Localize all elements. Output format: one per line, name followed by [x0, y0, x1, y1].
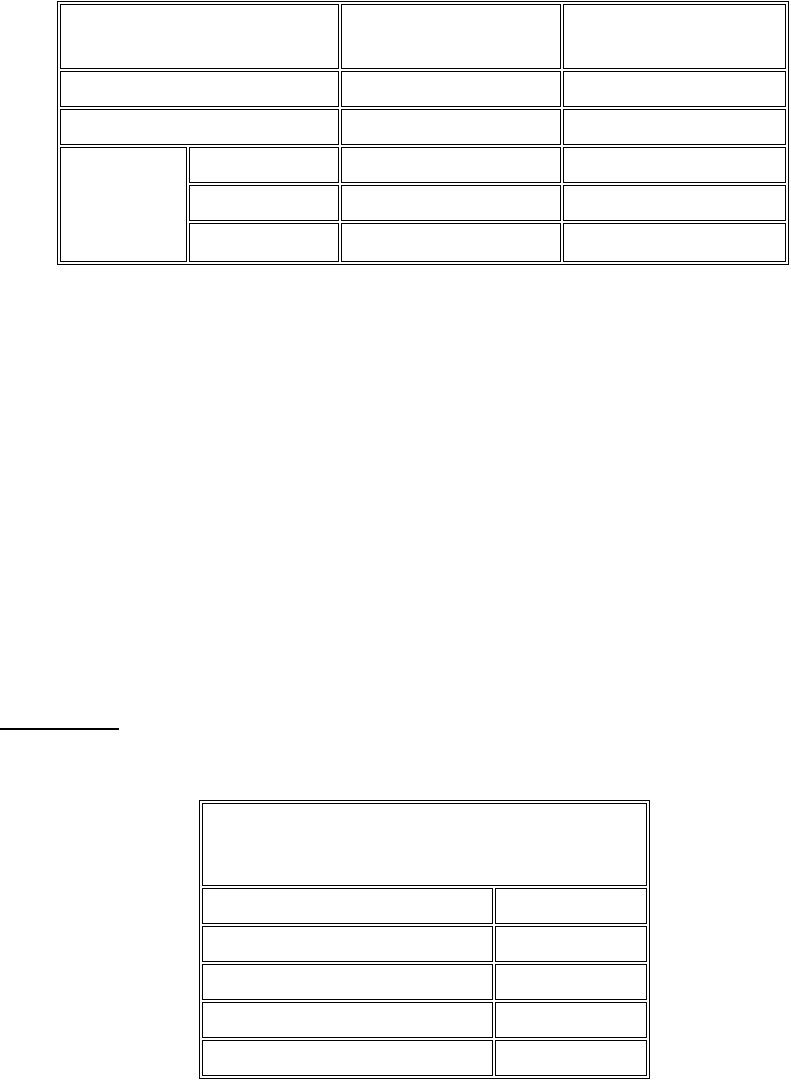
table-cell [495, 1002, 647, 1038]
bottom-table [199, 800, 650, 1079]
table-cell [341, 223, 561, 262]
table-cell [341, 4, 561, 69]
table-cell [202, 1040, 493, 1076]
bottom-table-row [202, 1040, 647, 1076]
table-cell [60, 109, 339, 145]
table-cell [341, 185, 561, 221]
bottom-table-row [202, 964, 647, 1000]
table-cell [495, 1040, 647, 1076]
table-cell [60, 71, 339, 107]
table-cell [495, 888, 647, 924]
table-cell-header [202, 803, 647, 886]
table-cell [202, 964, 493, 1000]
table-cell [563, 4, 786, 69]
table-cell [202, 926, 493, 962]
table-cell [495, 926, 647, 962]
table-cell [341, 109, 561, 145]
table-cell [189, 223, 339, 262]
bottom-table-row [202, 1002, 647, 1038]
table-cell [341, 147, 561, 183]
table-cell [202, 888, 493, 924]
bottom-table-row [202, 888, 647, 924]
top-table-row [60, 109, 786, 145]
footnote-rule [0, 728, 119, 730]
top-table-row [60, 147, 786, 183]
table-cell [563, 185, 786, 221]
table-cell [495, 964, 647, 1000]
table-cell [563, 109, 786, 145]
table-cell [341, 71, 561, 107]
table-cell [189, 147, 339, 183]
table-cell [189, 185, 339, 221]
table-cell-rowspan [60, 147, 187, 262]
table-cell [563, 71, 786, 107]
top-table-row [60, 4, 786, 69]
bottom-table-row [202, 926, 647, 962]
table-cell [563, 223, 786, 262]
top-table [57, 1, 789, 265]
document-page [0, 0, 791, 1089]
table-cell [563, 147, 786, 183]
top-table-row [60, 71, 786, 107]
bottom-table-row [202, 803, 647, 886]
table-cell [60, 4, 339, 69]
table-cell [202, 1002, 493, 1038]
